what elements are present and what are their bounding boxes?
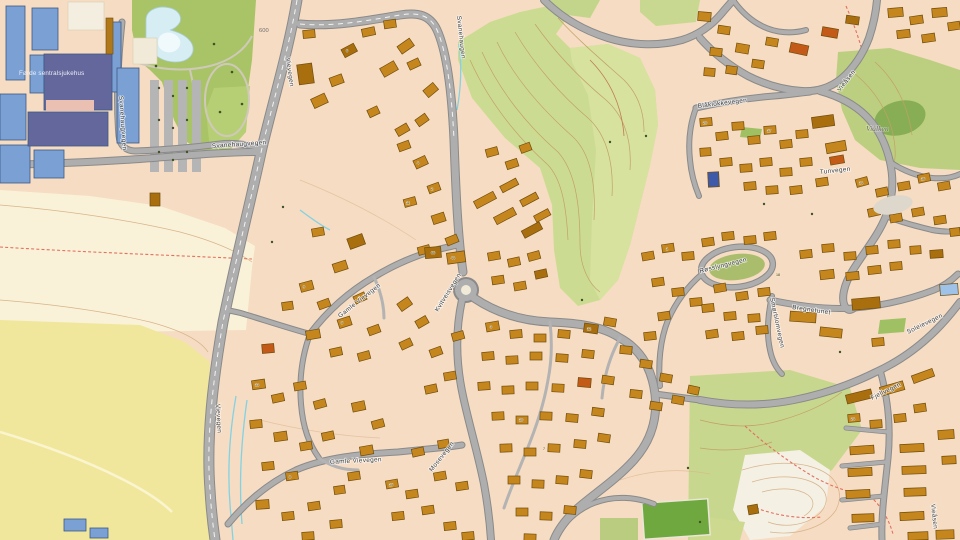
house-number: 44: [451, 256, 455, 260]
elevation-label: 600: [259, 28, 269, 34]
house-number: 1: [666, 247, 668, 251]
house-number: 20: [703, 121, 707, 125]
house-number: 24: [851, 417, 855, 421]
hospital-label: Førde sentralsjukehus: [19, 70, 84, 77]
house-number: 17: [767, 129, 771, 133]
house-number: 4: [417, 161, 419, 165]
hospital-courtyard: [46, 100, 94, 111]
park-plaza: [133, 38, 157, 64]
map-viewport: Førde sentralsjukehus: [0, 0, 960, 540]
house-number: 7: [543, 447, 545, 451]
house-number: 2: [431, 187, 433, 191]
house-number: 13: [255, 383, 259, 387]
house-number: 11: [406, 201, 410, 205]
house-number: 6: [346, 49, 348, 53]
house-number: 9: [303, 285, 305, 289]
house-number: 12: [587, 327, 591, 331]
house-number: 8: [289, 475, 291, 479]
building-navy: [708, 172, 720, 188]
house-number: 15: [389, 483, 393, 487]
house-number: 5: [341, 321, 343, 325]
building-lightblue: [940, 283, 959, 295]
yellow-field: [0, 320, 212, 540]
house-number: 10: [519, 418, 523, 422]
house-number: 16: [921, 177, 925, 181]
map-canvas[interactable]: Førde sentralsjukehus: [0, 0, 960, 540]
house-number: 18: [776, 273, 780, 277]
house-number: 3: [490, 325, 492, 329]
house-number: 66: [431, 251, 435, 255]
sports-lawn: [600, 518, 638, 540]
house-number: 14: [859, 181, 863, 185]
small-green-a: [878, 318, 906, 334]
place-label-vialken: Viålken: [866, 124, 889, 133]
